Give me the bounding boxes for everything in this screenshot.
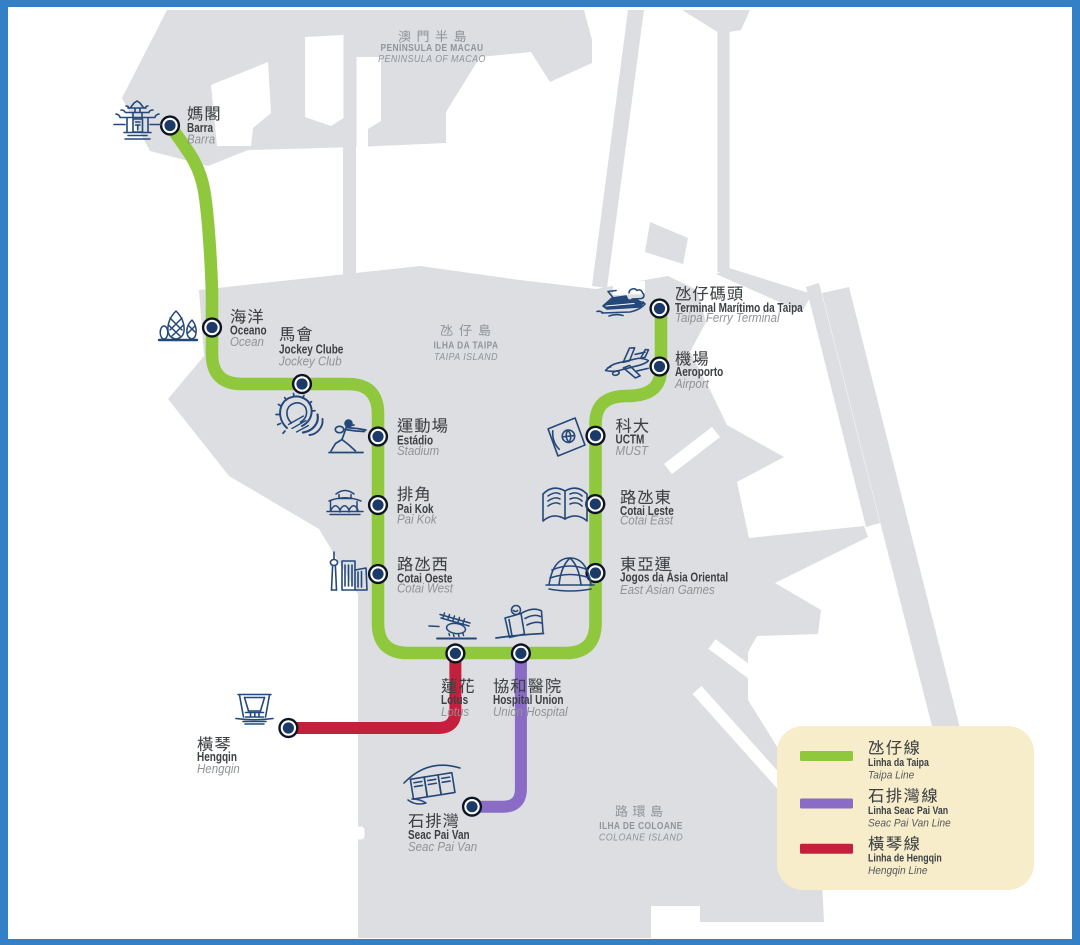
- svg-text:MUST: MUST: [616, 444, 650, 459]
- svg-text:TAIPA ISLAND: TAIPA ISLAND: [434, 351, 498, 363]
- svg-text:Hengqin: Hengqin: [197, 762, 240, 777]
- svg-text:Seac Pai Van: Seac Pai Van: [408, 840, 478, 855]
- svg-text:Seac Pai Van Line: Seac Pai Van Line: [868, 817, 951, 829]
- svg-text:Cotai West: Cotai West: [397, 581, 454, 596]
- svg-text:Pai Kok: Pai Kok: [397, 512, 438, 527]
- svg-text:Lotus: Lotus: [441, 704, 469, 719]
- svg-text:Stadium: Stadium: [397, 444, 439, 459]
- svg-text:Cotai East: Cotai East: [620, 513, 674, 528]
- svg-text:Linha de Hengqin: Linha de Hengqin: [868, 853, 942, 865]
- svg-text:Taipa Ferry Terminal: Taipa Ferry Terminal: [675, 311, 780, 326]
- svg-text:ILHA DE COLOANE: ILHA DE COLOANE: [599, 820, 683, 832]
- svg-text:Jockey Club: Jockey Club: [278, 354, 342, 369]
- svg-text:Linha da Taipa: Linha da Taipa: [868, 757, 929, 769]
- svg-text:ILHA DA TAIPA: ILHA DA TAIPA: [434, 340, 499, 352]
- svg-text:East Asian Games: East Asian Games: [620, 583, 715, 598]
- svg-text:Linha Seac Pai Van: Linha Seac Pai Van: [868, 805, 948, 817]
- svg-text:COLOANE ISLAND: COLOANE ISLAND: [599, 832, 683, 844]
- svg-text:PENINSULA OF MACAO: PENINSULA OF MACAO: [378, 53, 486, 65]
- svg-text:Ocean: Ocean: [230, 335, 264, 350]
- svg-text:Taipa Line: Taipa Line: [868, 769, 914, 781]
- svg-text:Barra: Barra: [187, 132, 215, 147]
- svg-text:Hengqin Line: Hengqin Line: [868, 865, 928, 877]
- svg-text:Union Hospital: Union Hospital: [493, 704, 568, 719]
- svg-text:Airport: Airport: [674, 377, 709, 392]
